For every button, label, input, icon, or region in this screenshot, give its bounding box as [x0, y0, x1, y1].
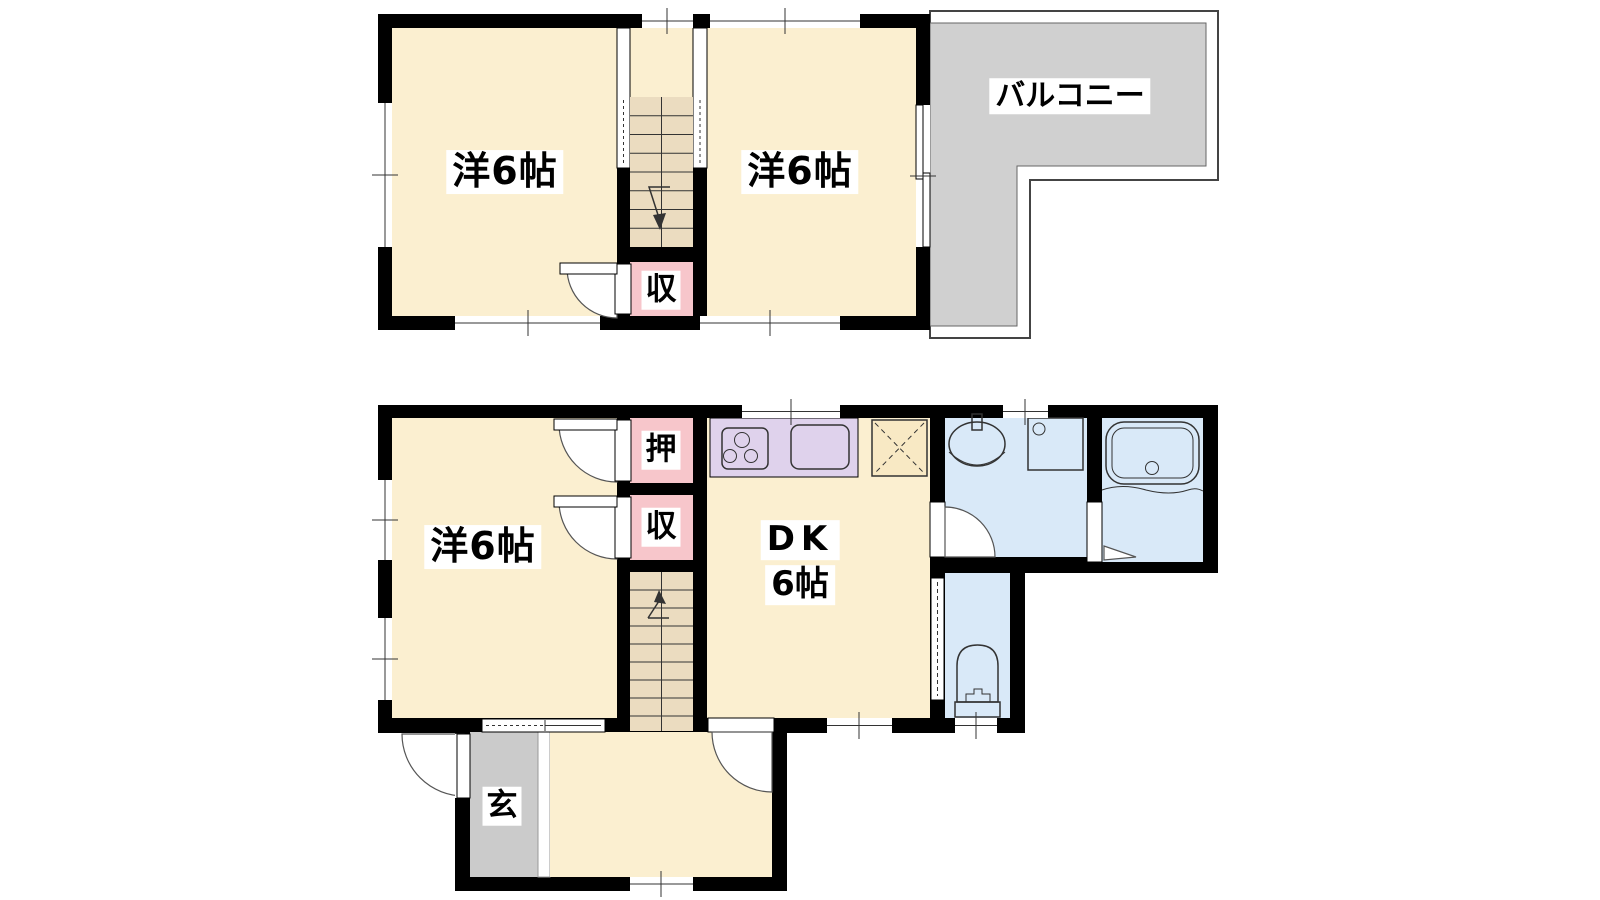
kitchen-counter [710, 418, 858, 477]
entrance-door [402, 734, 470, 798]
staircase-2f [630, 97, 693, 247]
room-sliding-door [482, 719, 605, 732]
dk-label: DK [761, 520, 840, 560]
room-label-2f-east: 洋6帖 [741, 150, 858, 194]
toilet-sliding-door [931, 578, 944, 700]
floor-plan: 洋6帖 洋6帖 収 バルコニー 洋6帖 押 収 DK 6帖 玄 [0, 0, 1600, 900]
room-label-1f: 洋6帖 [424, 525, 541, 569]
closet-label-1f: 収 [642, 508, 681, 547]
closet-label-2f: 収 [642, 271, 681, 310]
floor-plan-drawing [0, 0, 1600, 900]
staircase-1f [630, 572, 693, 731]
genkan-step [538, 732, 550, 877]
balcony-area [930, 11, 1218, 338]
dk-size-label: 6帖 [765, 565, 835, 605]
genkan-label: 玄 [483, 787, 522, 826]
balcony-label: バルコニー [989, 78, 1150, 114]
refrigerator-space-icon [872, 420, 927, 476]
oshiire-label: 押 [642, 431, 681, 470]
room-label-2f-west: 洋6帖 [446, 150, 563, 194]
